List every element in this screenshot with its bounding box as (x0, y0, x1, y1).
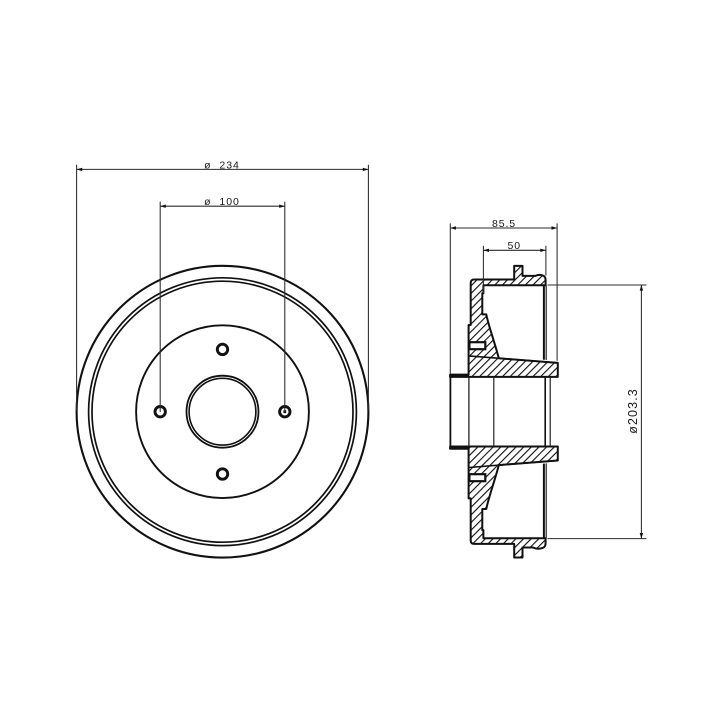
svg-text:85.5: 85.5 (492, 218, 516, 230)
svg-text:ø203.3: ø203.3 (626, 388, 640, 434)
svg-text:ø 234: ø 234 (204, 160, 240, 172)
svg-text:50: 50 (507, 240, 520, 252)
svg-text:ø 100: ø 100 (204, 196, 240, 208)
